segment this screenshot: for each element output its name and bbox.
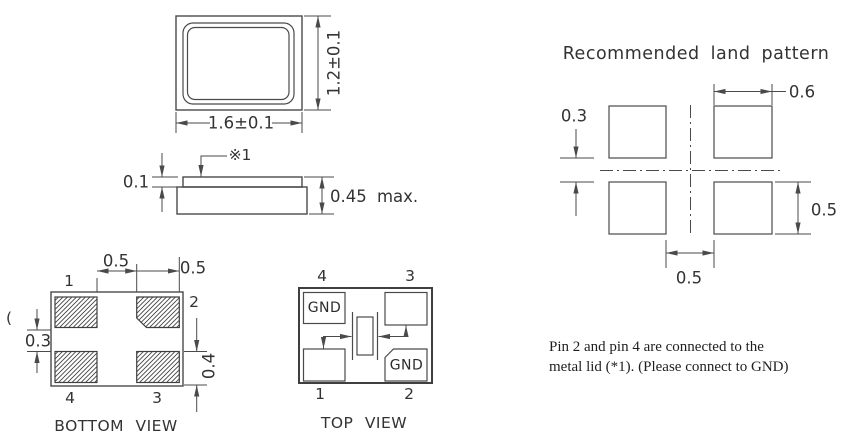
note-line-2: metal lid (*1). (Please connect to GND) xyxy=(549,359,789,375)
bottom-pin2-number: 2 xyxy=(189,293,199,311)
pin3-to-crystal-connection xyxy=(379,326,407,337)
land-pad-vertical-gap-dimension-lines xyxy=(560,129,594,216)
land-pattern-title: Recommended land pattern xyxy=(563,44,830,64)
top-view-title: TOP VIEW xyxy=(320,414,407,432)
land-pad-horizontal-gap-dimension-label: 0.5 xyxy=(676,269,702,288)
land-pattern-view: Recommended land pattern 0.6 0.3 0.5 xyxy=(560,44,837,288)
bottom-pad-width-dimension-label: 0.5 xyxy=(180,259,206,278)
package-base-outline xyxy=(177,187,307,214)
top-pad2-gnd-label: GND xyxy=(390,358,424,374)
land-pad-height-dimension-label: 0.5 xyxy=(811,201,837,220)
land-pad-top-right xyxy=(714,106,772,158)
top-pin3-number: 3 xyxy=(405,267,415,285)
lid-thickness-dimension-lines xyxy=(152,153,178,212)
top-view: GND GND 4 3 1 2 TOP VIEW xyxy=(299,267,432,432)
bottom-view: 0.5 0.5 0.3 ( 0.4 1 2 3 4 BOTTOM VIEW xyxy=(6,252,219,436)
top-pad4-gnd-label: GND xyxy=(308,300,342,316)
package-body-outline xyxy=(176,16,302,110)
max-height-dimension-label: 0.45 max. xyxy=(330,187,418,206)
bottom-pad-1 xyxy=(55,297,97,328)
land-pad-width-dimension-label: 0.6 xyxy=(789,83,815,102)
land-pad-vertical-gap-dimension-label: 0.3 xyxy=(561,107,587,126)
bottom-pin4-number: 4 xyxy=(65,389,75,407)
land-pad-bottom-left xyxy=(609,182,666,234)
drawing-svg: 1.6±0.1 1.2±0.1 0.1 ※1 0.45 max. xyxy=(0,0,865,447)
metal-lid-outline xyxy=(183,177,302,187)
bottom-pad-vertical-gap-dimension-label: 0.3 xyxy=(25,332,51,351)
bottom-pad-4 xyxy=(55,352,97,383)
crystal-element-symbol xyxy=(353,312,378,360)
top-pad-3 xyxy=(385,293,427,326)
package-lid-outline xyxy=(183,23,294,104)
stray-parenthesis-mark: ( xyxy=(6,309,12,327)
crystal-body xyxy=(357,317,373,355)
bottom-view-title: BOTTOM VIEW xyxy=(54,417,178,435)
package-lid-inner-outline xyxy=(188,28,290,100)
mechanical-drawing-sheet: 1.6±0.1 1.2±0.1 0.1 ※1 0.45 max. xyxy=(0,0,865,447)
package-outline-view: 1.6±0.1 1.2±0.1 xyxy=(176,16,344,133)
pin1-to-crystal-connection xyxy=(324,337,352,349)
bottom-pad-3 xyxy=(137,352,180,383)
bottom-pin1-number: 1 xyxy=(64,272,74,290)
top-pin4-number: 4 xyxy=(317,267,327,285)
side-view: 0.1 ※1 0.45 max. xyxy=(123,146,418,214)
land-pad-top-left xyxy=(609,106,666,158)
lid-reference-mark-label: ※1 xyxy=(229,146,252,164)
land-pad-height-dimension-lines xyxy=(775,182,811,234)
top-pin1-number: 1 xyxy=(315,385,325,403)
bottom-pin3-number: 3 xyxy=(152,389,162,407)
bottom-pad-gap-dimension-label: 0.5 xyxy=(103,252,129,271)
bottom-pad-height-dimension-label: 0.4 xyxy=(200,353,219,379)
lid-thickness-dimension-label: 0.1 xyxy=(123,173,149,192)
top-pin2-number: 2 xyxy=(404,385,414,403)
note-line-1: Pin 2 and pin 4 are connected to the xyxy=(549,339,764,355)
lid-connection-note: Pin 2 and pin 4 are connected to the met… xyxy=(549,339,789,375)
package-height-dimension-label: 1.2±0.1 xyxy=(325,30,344,96)
land-pad-bottom-right xyxy=(714,182,772,234)
package-width-dimension-label: 1.6±0.1 xyxy=(208,114,274,133)
lid-reference-leader-line xyxy=(201,156,227,177)
land-pad-width-dimension-lines xyxy=(714,84,786,105)
bottom-pad-2-chamfered xyxy=(137,297,180,328)
land-pad-horizontal-gap-dimension-lines xyxy=(666,240,714,268)
top-pad-1 xyxy=(304,349,346,381)
